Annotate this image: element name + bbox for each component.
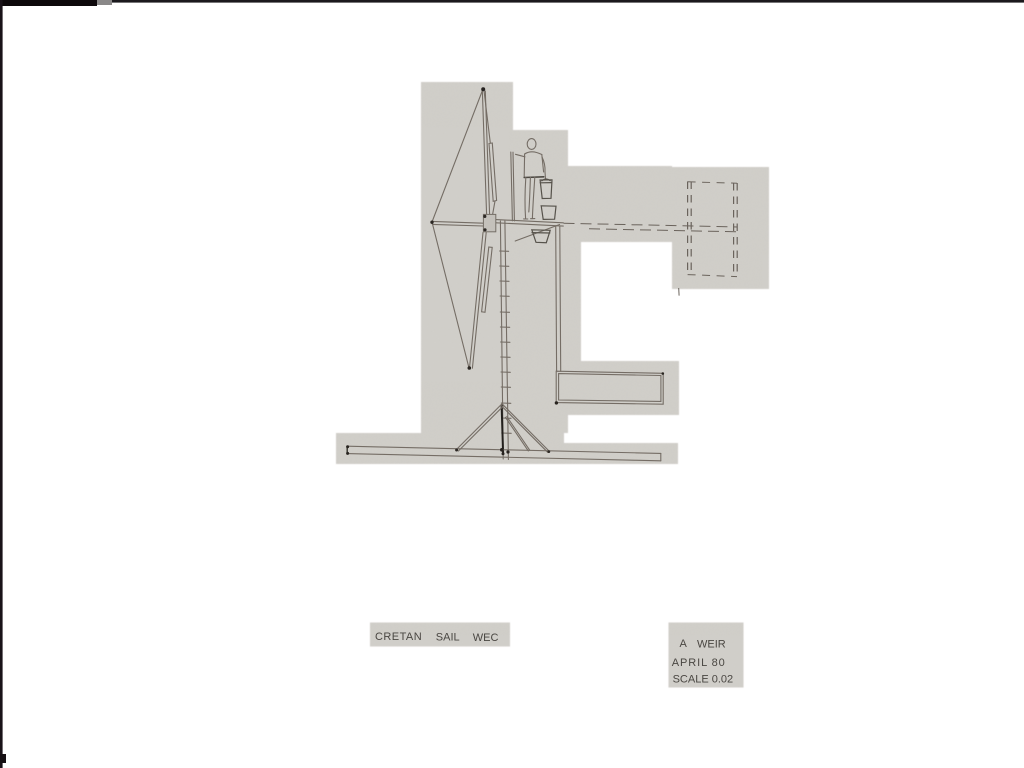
svg-text:A: A [680,638,688,650]
svg-text:APRIL 80: APRIL 80 [672,657,726,669]
svg-text:WEIR: WEIR [697,639,726,651]
svg-text:SCALE 0.02: SCALE 0.02 [673,673,734,685]
svg-text:SAIL: SAIL [436,632,460,644]
svg-text:CRETAN: CRETAN [375,631,422,643]
svg-text:WEC: WEC [473,632,499,644]
